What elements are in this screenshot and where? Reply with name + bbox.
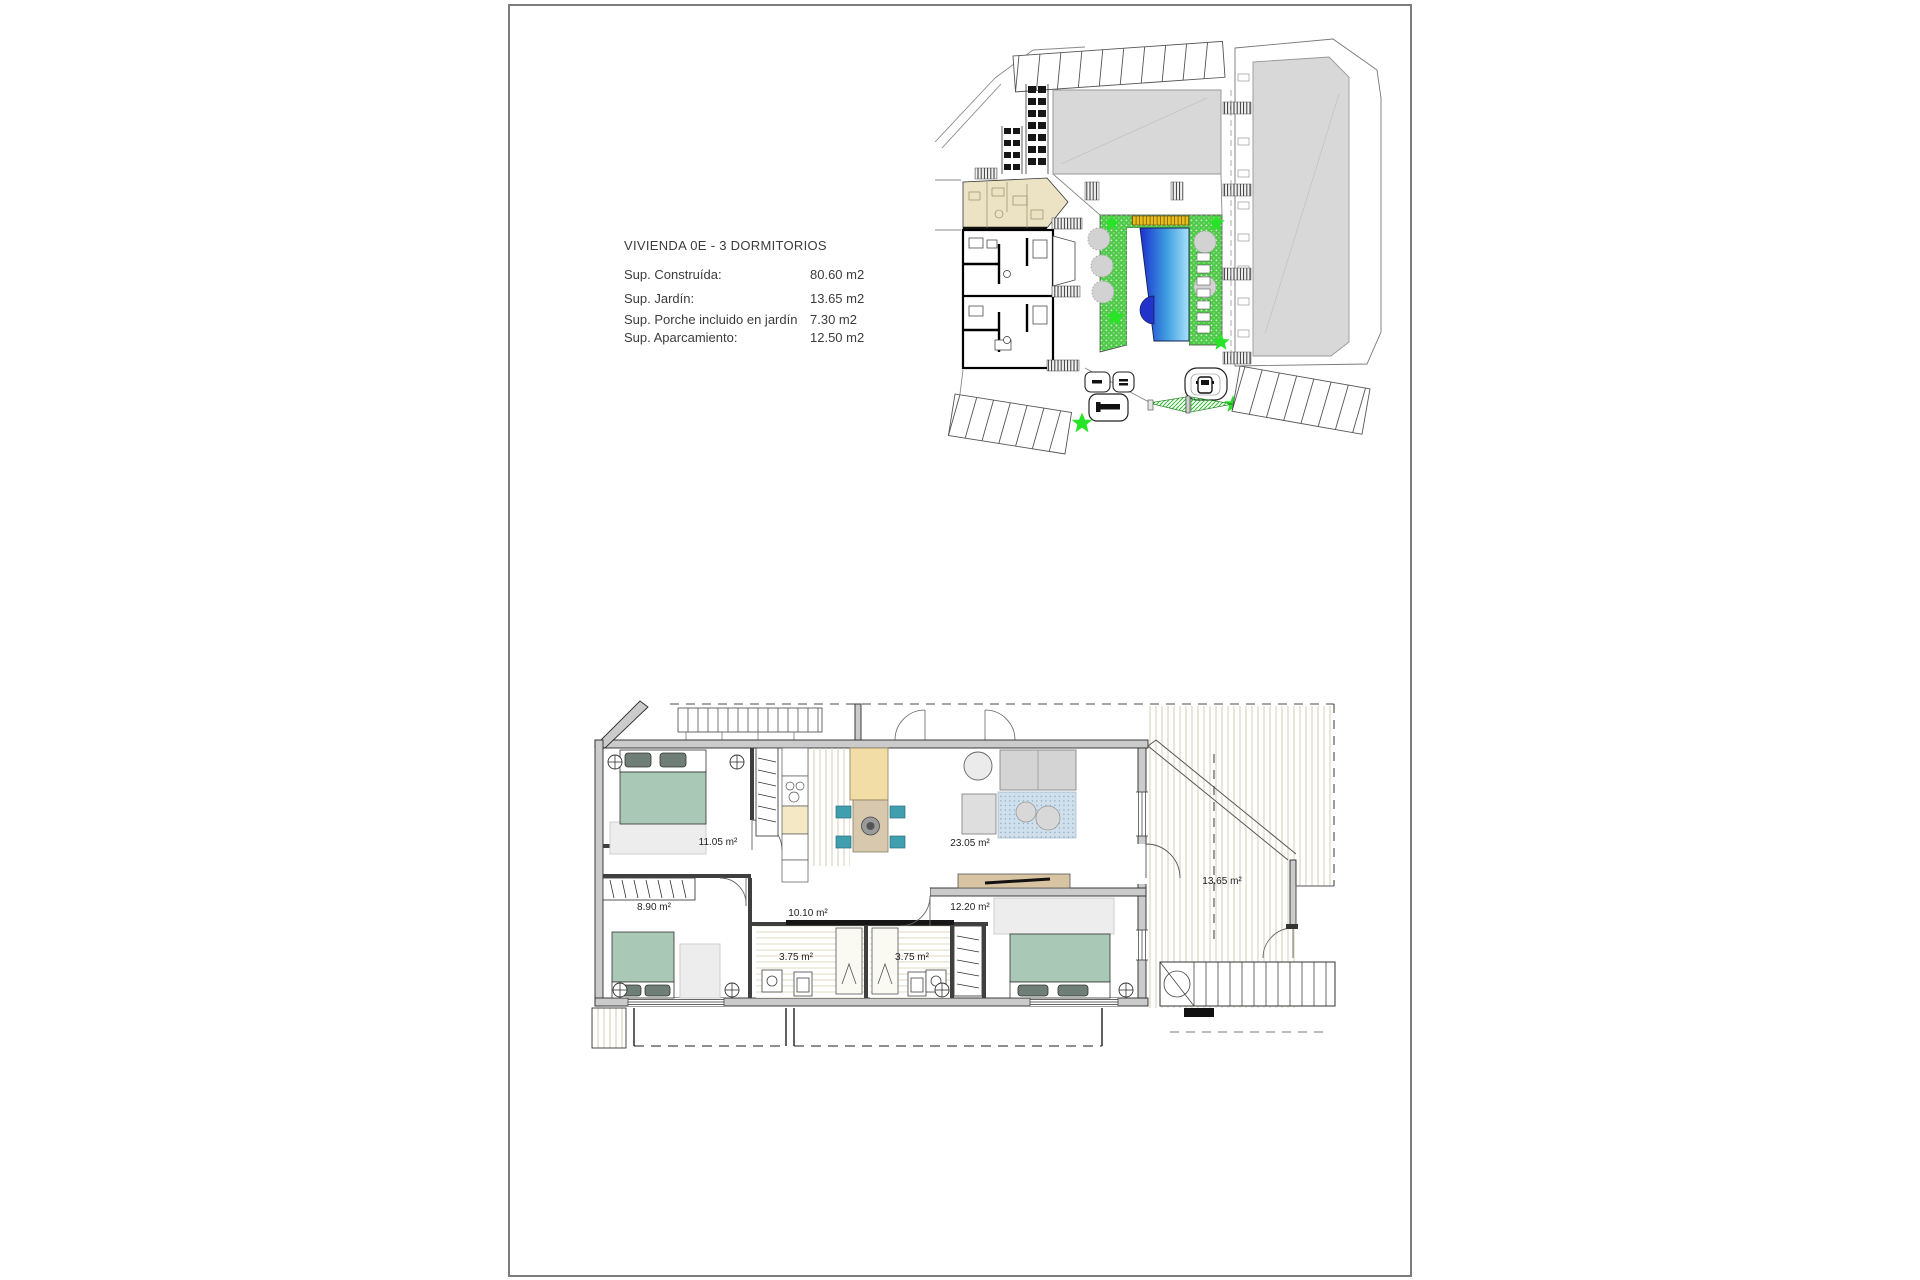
room-label-living: 23.05 m² bbox=[950, 838, 990, 849]
room-label-bedroom-2: 8.90 m² bbox=[637, 902, 672, 913]
armchair bbox=[962, 794, 996, 834]
info-label: Sup. Aparcamiento: bbox=[624, 330, 810, 345]
unit-parking-icons bbox=[1085, 368, 1233, 421]
unit-title: VIVIENDA 0E - 3 DORMITORIOS bbox=[624, 238, 864, 253]
site-plan bbox=[935, 34, 1395, 464]
info-row: Sup. Porche incluido en jardín 7.30 m2 bbox=[624, 312, 864, 327]
terrace-door-threshold bbox=[1286, 924, 1298, 929]
info-label: Sup. Porche incluido en jardín bbox=[624, 312, 810, 327]
sunshade bbox=[1132, 216, 1189, 225]
car-space bbox=[1185, 368, 1227, 400]
floor-plan: 11.05 m² 8.90 m² 10.10 m² 3.75 m² 3.75 m… bbox=[590, 696, 1350, 1064]
info-value: 13.65 m2 bbox=[810, 291, 864, 306]
kitchen-island bbox=[850, 748, 888, 800]
building-top bbox=[1053, 90, 1221, 174]
info-value: 12.50 m2 bbox=[810, 330, 864, 345]
room-label-bathroom-2: 3.75 m² bbox=[895, 952, 930, 963]
info-label: Sup. Jardín: bbox=[624, 291, 810, 306]
bedroom-3-bed bbox=[1010, 934, 1110, 998]
round-table bbox=[964, 752, 992, 780]
black-unit-plans bbox=[963, 218, 1082, 371]
info-value: 7.30 m2 bbox=[810, 312, 857, 327]
room-label-hallway: 10.10 m² bbox=[788, 908, 828, 919]
living-room bbox=[958, 750, 1076, 888]
info-value: 80.60 m2 bbox=[810, 267, 864, 282]
green-path-wedge bbox=[1149, 397, 1186, 412]
parking-row-bottom-right bbox=[1232, 366, 1370, 434]
info-row: Sup. Construída: 80.60 m2 bbox=[624, 267, 864, 282]
staircase bbox=[1160, 962, 1335, 1017]
info-label: Sup. Construída: bbox=[624, 267, 810, 282]
room-label-terrace: 13.65 m² bbox=[1202, 876, 1242, 887]
sun-loungers bbox=[1197, 253, 1210, 333]
stair-ladders bbox=[1002, 84, 1048, 174]
bedroom-1-bed bbox=[620, 750, 706, 824]
drawing-sheet: VIVIENDA 0E - 3 DORMITORIOS Sup. Constru… bbox=[508, 4, 1412, 1277]
room-label-bedroom-3: 12.20 m² bbox=[950, 902, 990, 913]
room-label-bedroom-1: 11.05 m² bbox=[699, 837, 738, 848]
kitchen bbox=[782, 748, 905, 882]
info-row: Sup. Aparcamiento: 12.50 m2 bbox=[624, 330, 864, 345]
rear-patios bbox=[592, 1008, 1102, 1048]
building-right bbox=[1235, 39, 1381, 366]
unit-info-block: VIVIENDA 0E - 3 DORMITORIOS Sup. Constru… bbox=[624, 238, 864, 345]
parking-row-bottom-left bbox=[948, 394, 1071, 454]
shower-1 bbox=[836, 928, 862, 994]
info-row: Sup. Jardín: 13.65 m2 bbox=[624, 291, 864, 306]
room-label-bathroom-1: 3.75 m² bbox=[779, 952, 814, 963]
